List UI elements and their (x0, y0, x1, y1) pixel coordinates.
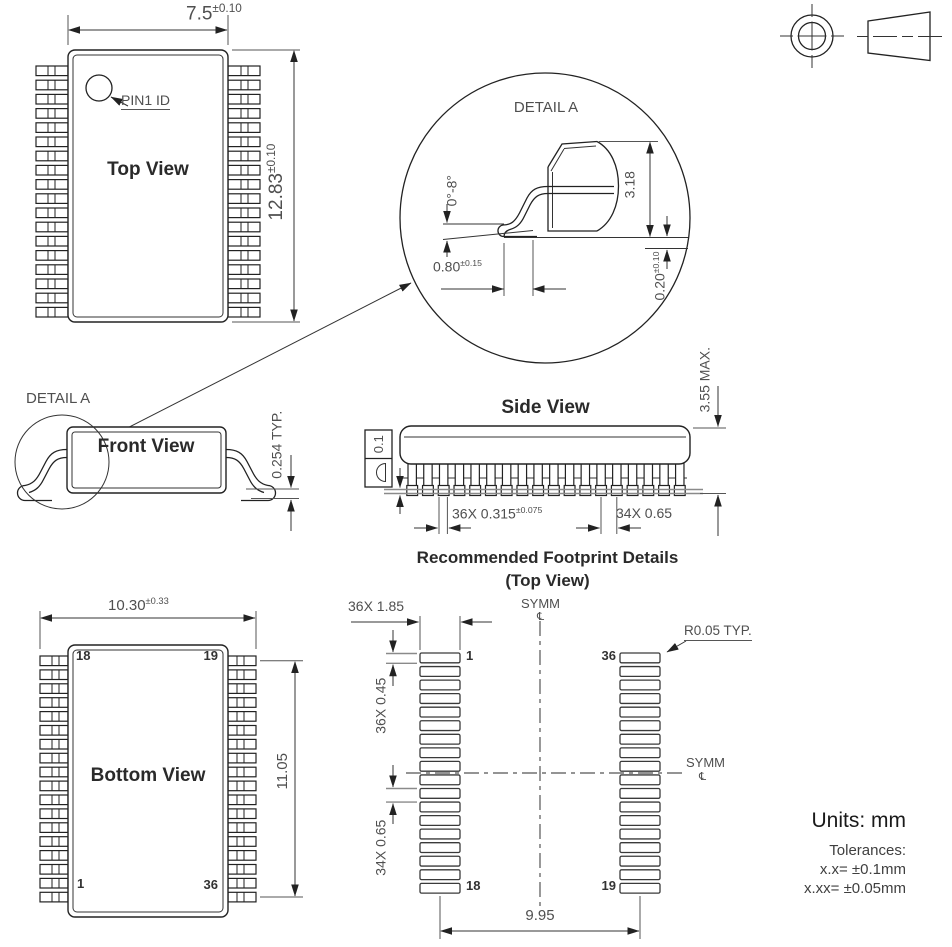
tolerance-line-2: x.xx= ±0.05mm (804, 881, 906, 898)
pad-number-19: 19 (588, 879, 616, 893)
footprint-subtitle: (Top View) (377, 572, 718, 591)
dim-lead-thickness: 0.254 TYP. (269, 399, 284, 491)
pin-number-18: 18 (76, 649, 90, 663)
centerline-icon: ℄ (512, 611, 569, 623)
pin1-id-label: PIN1 ID (121, 93, 170, 110)
pad-number-1: 1 (466, 649, 473, 663)
dim-bottom-width: 10.30±0.33 (108, 596, 169, 615)
dim-top-width: 7.5±0.10 (186, 3, 242, 25)
dim-foot-length: 0.80±0.15 (433, 259, 482, 275)
centerline-icon: ℄ (699, 771, 706, 783)
profile-of-surface-icon (376, 464, 385, 482)
symm-label-right: SYMM (686, 756, 725, 770)
dim-pad-length: 36X 1.85 (348, 599, 404, 614)
radius-leader (667, 641, 686, 652)
pin-number-36: 36 (194, 878, 218, 892)
dim-pad-pitch: 34X 0.65 (373, 813, 388, 883)
pad-number-18: 18 (466, 879, 480, 893)
dim-pin-span: 11.05 (275, 736, 292, 806)
dim-lead-width: 36X 0.315±0.075 (452, 506, 542, 522)
dim-standoff: 0.20±0.10 (652, 231, 668, 321)
tolerances-title: Tolerances: (829, 843, 906, 860)
pad-number-36: 36 (588, 649, 616, 663)
detail-a-callout-label: DETAIL A (26, 391, 90, 408)
flatness-value: 0.1 (371, 429, 385, 459)
pin-number-1: 1 (77, 877, 84, 891)
dim-lead-angle: 0°-8° (444, 161, 459, 221)
dim-lead-pitch: 34X 0.65 (616, 506, 672, 521)
pin-number-19: 19 (194, 649, 218, 663)
package-drawing-page: 7.5±0.10 12.83±0.10 Top View PIN1 ID DET… (0, 0, 952, 947)
front-view-title: Front View (66, 437, 226, 458)
detail-a-title: DETAIL A (500, 100, 592, 117)
units-note: Units: mm (812, 809, 907, 832)
footprint-view (351, 616, 686, 939)
dim-lead-height: 3.18 (622, 160, 637, 210)
footprint-title: Recommended Footprint Details (377, 549, 718, 568)
side-view-title: Side View (468, 398, 623, 419)
top-view-body (36, 50, 260, 322)
front-view-body (15, 415, 299, 531)
top-view-title: Top View (68, 160, 228, 181)
symm-label-top: SYMM (512, 597, 569, 611)
drawing-linework (0, 0, 952, 947)
dim-pad-span: 9.95 (505, 908, 575, 925)
third-angle-projection-cone-icon (857, 12, 946, 61)
dim-max-height: 3.55 MAX. (697, 334, 712, 426)
dim-pad-radius: R0.05 TYP. (684, 624, 752, 641)
third-angle-projection-circles-icon (780, 4, 844, 68)
dim-pad-width: 36X 0.45 (373, 671, 388, 741)
bottom-view-title: Bottom View (68, 766, 228, 787)
dim-top-height: 12.83±0.10 (266, 122, 288, 242)
tolerance-line-1: x.x= ±0.1mm (820, 862, 906, 879)
